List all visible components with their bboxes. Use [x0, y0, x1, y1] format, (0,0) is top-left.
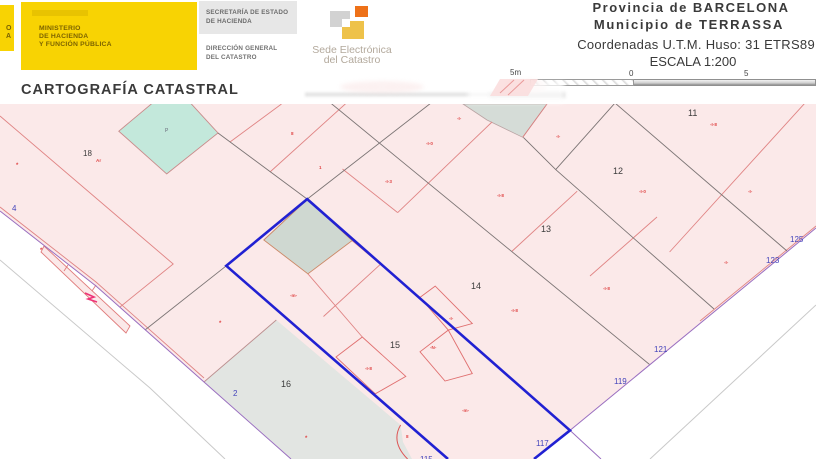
svg-text:123: 123	[766, 256, 780, 265]
svg-text:4: 4	[12, 204, 17, 213]
svg-text:-I-8: -I-8	[365, 366, 372, 371]
svg-text:-I-: -I-	[748, 189, 753, 194]
svg-text:14: 14	[471, 281, 481, 291]
svg-text:119: 119	[614, 377, 627, 386]
svg-text:15: 15	[390, 340, 400, 350]
svg-text:-N-: -N-	[430, 345, 437, 350]
svg-text:11: 11	[688, 108, 697, 118]
svg-text:-I-3: -I-3	[385, 179, 392, 184]
svg-text:-I-: -I-	[457, 116, 462, 121]
svg-text:16: 16	[281, 379, 291, 389]
svg-text:-I-: -I-	[724, 260, 729, 265]
svg-text:125: 125	[790, 235, 804, 244]
svg-text:117: 117	[536, 439, 549, 448]
svg-text:18: 18	[83, 149, 92, 158]
svg-text:13: 13	[541, 224, 551, 234]
svg-text:-I-8: -I-8	[497, 193, 504, 198]
svg-text:8: 8	[291, 131, 294, 136]
svg-text:-I-0: -I-0	[639, 189, 646, 194]
svg-text:Ar: Ar	[96, 158, 101, 163]
svg-text:-I-8: -I-8	[511, 308, 518, 313]
svg-text:1: 1	[319, 165, 322, 170]
svg-text:8: 8	[406, 434, 409, 439]
svg-text:-I-: -I-	[556, 134, 561, 139]
svg-text:-m-: -m-	[290, 293, 298, 298]
svg-text:121: 121	[654, 345, 668, 354]
svg-text:-I-8: -I-8	[603, 286, 610, 291]
svg-text:-I-: -I-	[449, 316, 454, 321]
svg-text:115: 115	[420, 455, 433, 459]
svg-text:12: 12	[613, 166, 623, 176]
svg-text:-I-0: -I-0	[426, 141, 433, 146]
svg-text:-m-: -m-	[462, 408, 470, 413]
svg-text:-I-8: -I-8	[710, 122, 717, 127]
svg-text:2: 2	[233, 389, 238, 398]
